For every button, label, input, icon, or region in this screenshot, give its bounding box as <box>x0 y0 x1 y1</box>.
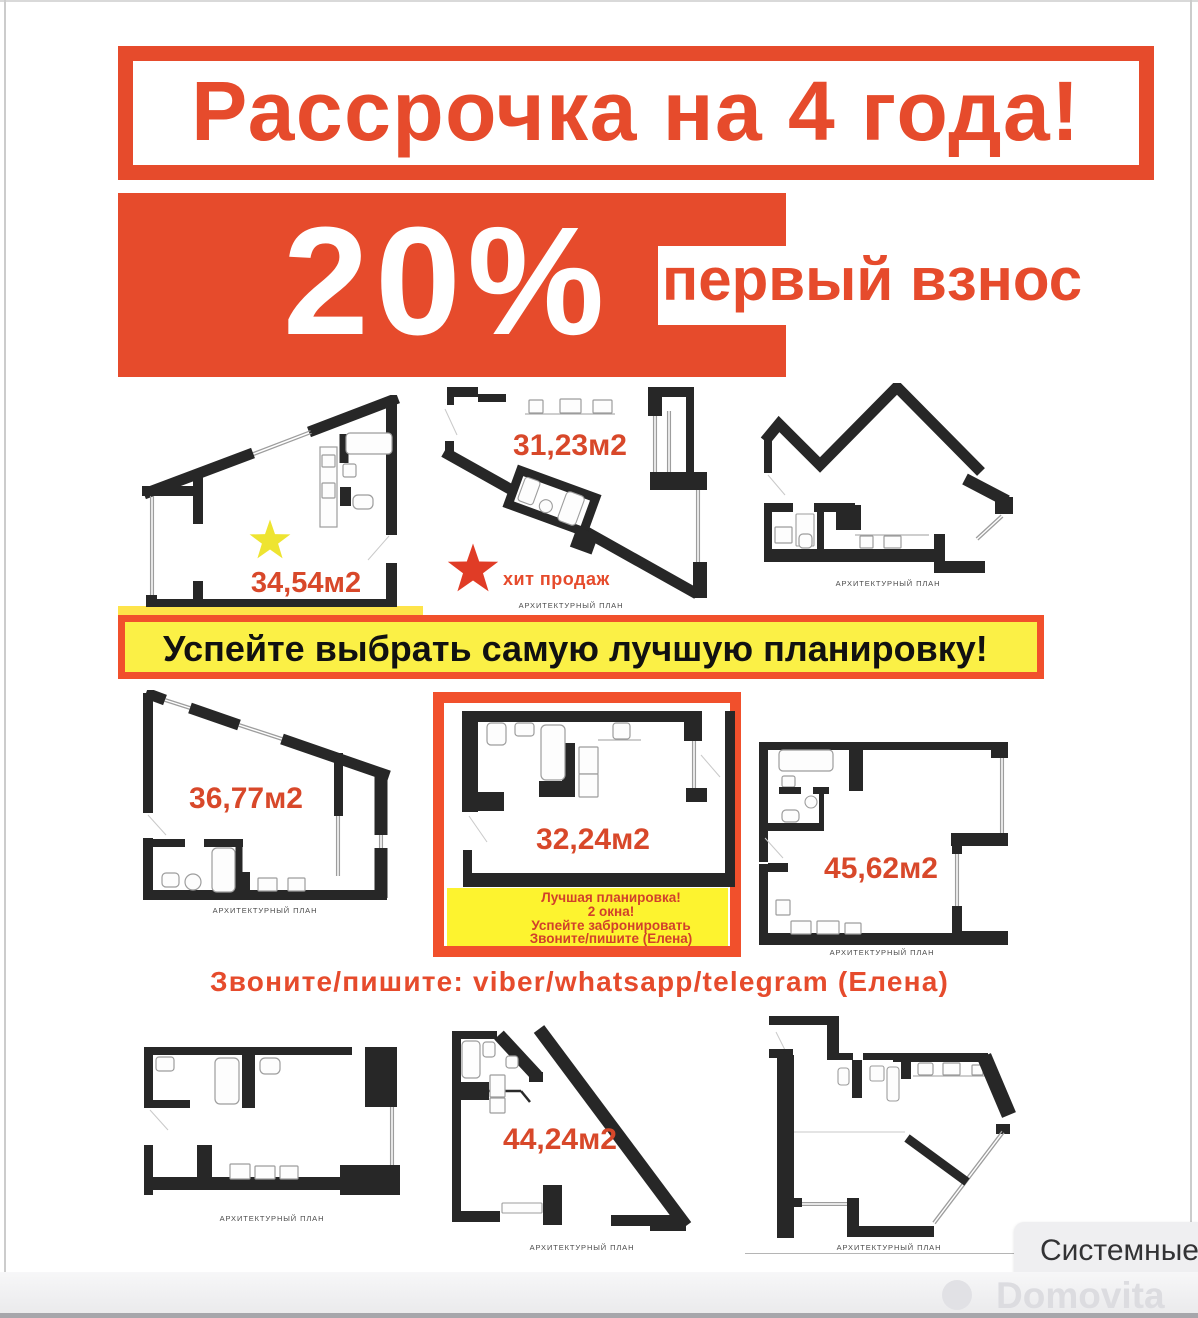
svg-text:44,24м2: 44,24м2 <box>503 1123 617 1156</box>
svg-text:32,24м2: 32,24м2 <box>536 823 650 856</box>
svg-text:31,23м2: 31,23м2 <box>513 429 627 462</box>
svg-text:45,62м2: 45,62м2 <box>824 852 938 885</box>
svg-text:Domovita: Domovita <box>996 1275 1165 1316</box>
svg-text:36,77м2: 36,77м2 <box>189 782 303 815</box>
svg-text:34,54м2: 34,54м2 <box>251 567 361 599</box>
